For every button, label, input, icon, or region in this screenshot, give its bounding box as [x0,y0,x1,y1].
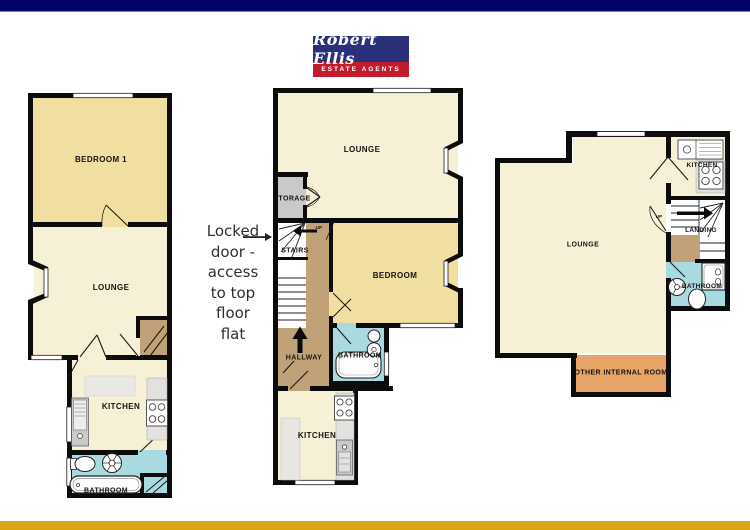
room-label-landing: LANDING [685,228,717,235]
room-label-lounge-middle: LOUNGE [344,146,381,154]
floorplan-graphics [0,0,750,530]
room-label-hallway: HALLWAY [286,355,322,362]
annotation-line: access [192,262,274,283]
hob-icon [335,396,355,420]
room-label-bedroom1: BEDROOM 1 [75,156,127,164]
locked-door-annotation: Locked door - access to top floor flat [192,221,274,344]
room-label-lounge-left: LOUNGE [93,284,130,292]
annotation-line: to top [192,283,274,304]
annotation-line: door - [192,242,274,263]
room-label-storage: STORAGE [273,196,310,203]
window [597,132,645,137]
room-label-up-right: UP [656,215,663,220]
room-label-bathroom-middle: BATHROOM [338,353,382,360]
annotation-line: flat [192,324,274,345]
toilet-icon [689,289,706,309]
room-label-kitchen-left: KITCHEN [102,403,140,411]
basin-icon [103,454,122,473]
left-plan [28,93,172,498]
room-label-bathroom-right: BATHROOM [682,284,722,291]
sink-unit-icon [678,140,723,159]
room-label-kitchen-right: KITCHEN [687,163,718,170]
window [400,323,455,327]
window [31,355,62,359]
room-label-stairs: STAIRS [281,248,309,255]
annotation-line: Locked [192,221,274,242]
hob-icon [147,400,168,426]
floorplan-page: Robert Ellis ESTATE AGENTS [0,0,750,530]
room-label-lounge-right: LOUNGE [567,242,599,249]
window [67,407,72,442]
window [384,352,388,376]
window [73,93,133,97]
sink-unit-icon [72,398,89,446]
room-label-kitchen-middle: KITCHEN [298,432,336,440]
room-label-up-middle: UP [316,226,323,231]
annotation-line: floor [192,303,274,324]
right-plan [495,131,730,397]
room-label-other-internal-room: OTHER INTERNAL ROOM [574,370,667,377]
sink-unit-icon [337,440,353,475]
kitchen-counter [281,418,300,480]
toilet-icon [71,457,96,472]
room-label-bathroom-left: BATHROOM [84,488,128,495]
window [373,88,431,92]
room-label-bedroom-middle: BEDROOM [373,272,418,280]
window [295,480,335,484]
